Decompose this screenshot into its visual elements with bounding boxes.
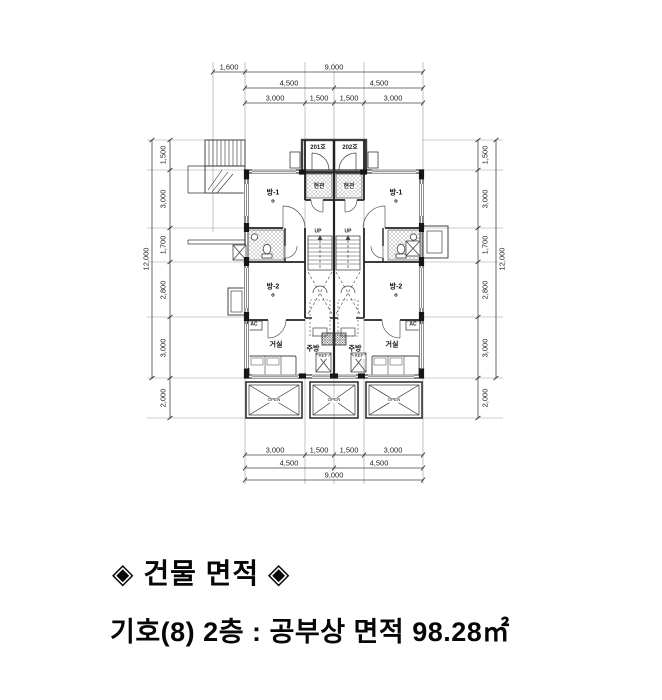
dim-bottom-half-left: 4,500 [279,459,300,467]
up-label-left: UP [314,230,323,235]
grid-lines [147,62,503,484]
exterior-stair [188,140,245,244]
datum-symbol: ⊕ [393,294,399,299]
living-label-right: 거실 [385,342,400,349]
open-label-left: OPEN [267,398,282,403]
dim-top-half-right: 4,500 [369,79,390,87]
ac-label-right: AC [408,323,417,328]
room1-label-left: 방-1 [266,190,281,197]
kitchen-label-right: 주방 [348,346,363,353]
dim-left-1: 1,500 [159,145,167,166]
room1-label-right: 방-1 [389,190,404,197]
dim-bottom-seg4: 3,000 [383,446,404,454]
bathrooms [233,230,422,260]
dim-top-seg4: 3,000 [383,94,404,102]
dim-left-3: 1,700 [159,235,167,256]
dim-bottom-seg1: 3,000 [265,446,286,454]
caption-area-text: 기호(8) 2층 : 공부상 면적 98.28㎡ [110,610,510,649]
unit-202-label: 202호 [341,145,359,151]
dim-top-seg2: 1,500 [309,94,330,102]
ref-label-right: REF [354,354,365,359]
dimension-ticks [150,70,499,483]
open-label-center: OPEN [327,398,342,403]
floor-plan-drawing [0,0,662,700]
dim-bottom-overall: 9,000 [324,471,345,479]
dim-top-half-left: 4,500 [279,79,300,87]
dim-left-overall: 12,000 [142,247,150,272]
dim-top-overall: 9,000 [324,63,345,71]
entry-label-left: 현관 [312,184,325,190]
dim-top-stair: 1,600 [219,63,240,71]
datum-symbol: ⊕ [270,294,276,299]
entry-label-right: 현관 [342,184,355,190]
dim-left-6: 2,000 [159,388,167,409]
dim-bottom-seg3: 1,500 [339,446,360,454]
datum-symbol: ⊕ [393,200,399,205]
dim-top-seg3: 1,500 [339,94,360,102]
ref-label-left: REF [318,354,329,359]
room2-label-left: 방-2 [266,284,281,291]
dim-bottom-seg2: 1,500 [309,446,330,454]
datum-symbol: ⊕ [270,200,276,205]
dim-left-4: 2,800 [159,280,167,301]
dim-right-5: 3,000 [481,338,489,359]
dim-right-4: 2,800 [481,280,489,301]
up-label-right: UP [344,230,353,235]
unit-201-label: 201호 [309,145,327,151]
dim-right-3: 1,700 [481,235,489,256]
dim-right-2: 3,000 [481,189,489,210]
dim-left-5: 3,000 [159,338,167,359]
living-label-left: 거실 [269,342,284,349]
dim-top-seg1: 3,000 [265,94,286,102]
dim-bottom-half-right: 4,500 [369,459,390,467]
dim-right-overall: 12,000 [498,247,506,272]
scanned-floorplan-page: 1,600 9,000 4,500 4,500 3,000 1,500 1,50… [0,0,662,700]
dim-right-6: 2,000 [481,388,489,409]
dim-right-1: 1,500 [481,145,489,166]
kitchen-label-left: 주방 [306,346,321,353]
room2-label-right: 방-2 [389,284,404,291]
ac-label-left: AC [249,323,258,328]
dim-left-2: 3,000 [159,189,167,210]
caption-title: ◈ 건물 면적 ◈ [112,552,290,592]
open-label-right: OPEN [387,398,402,403]
